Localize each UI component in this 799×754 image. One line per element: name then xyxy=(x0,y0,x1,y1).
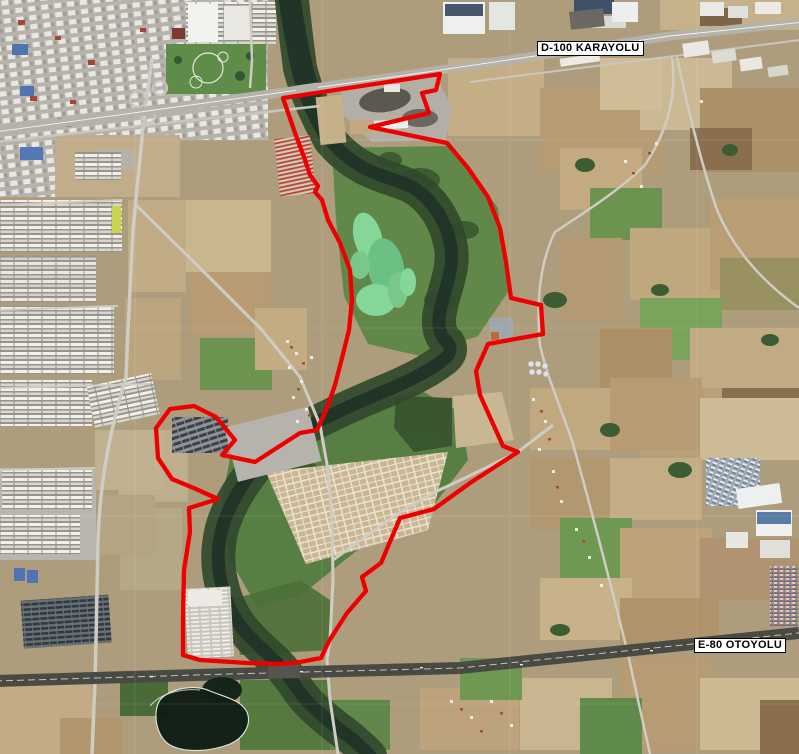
road-label-e80: E-80 OTOYOLU xyxy=(694,638,786,653)
silos xyxy=(528,361,549,377)
container-yard xyxy=(770,566,798,626)
road-label-d100: D-100 KARAYOLU xyxy=(537,41,644,56)
map-canvas xyxy=(0,0,799,754)
lumber-yard xyxy=(274,135,316,196)
satellite-map: D-100 KARAYOLU E-80 OTOYOLU xyxy=(0,0,799,754)
